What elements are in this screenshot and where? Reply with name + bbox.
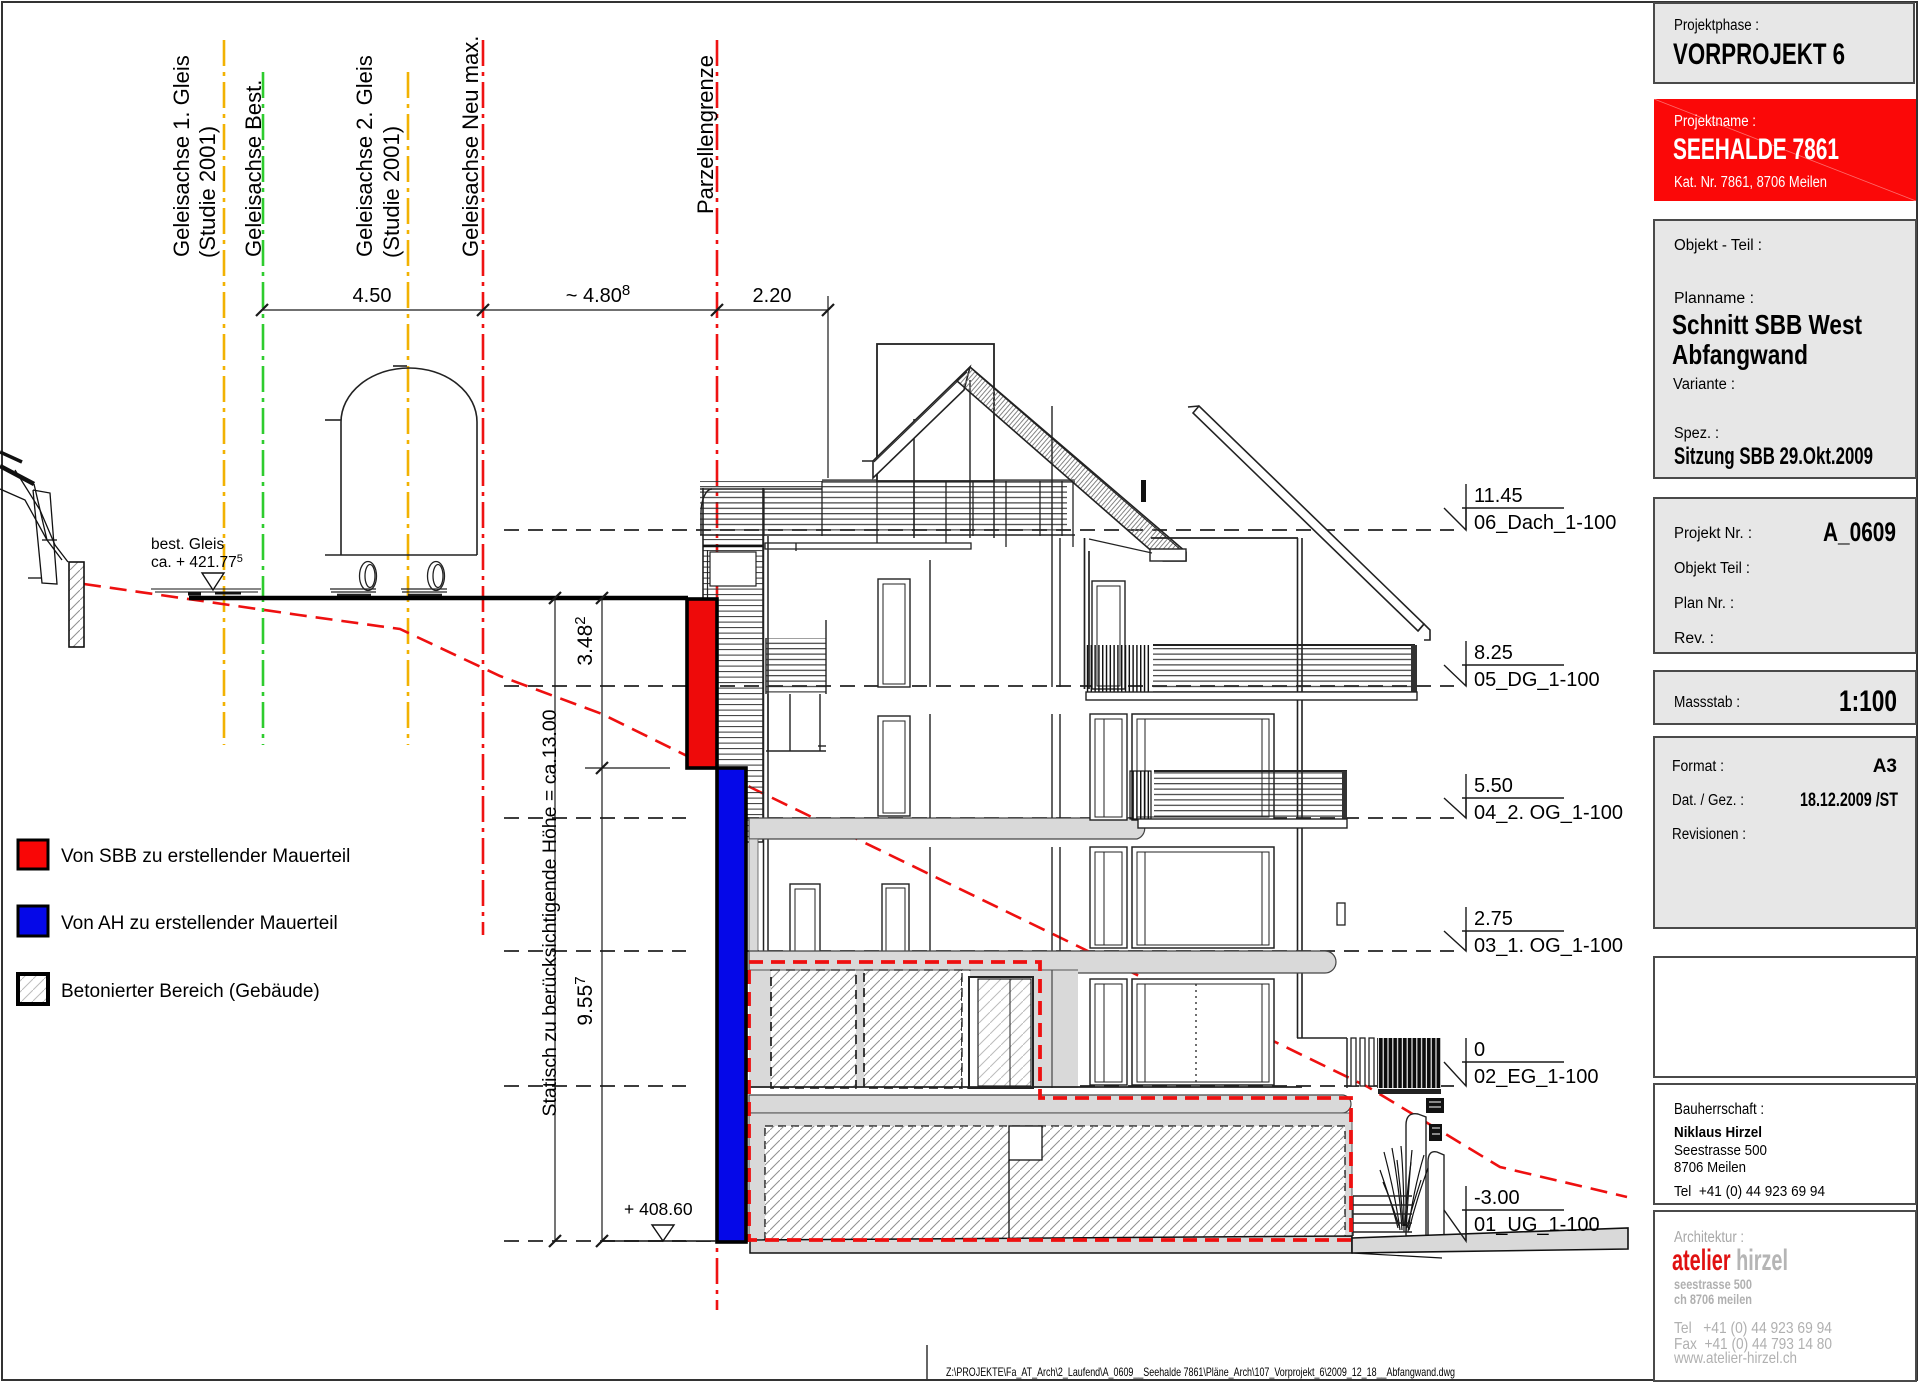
svg-text:Objekt - Teil :: Objekt - Teil :	[1674, 237, 1762, 254]
svg-text:5.50: 5.50	[1474, 775, 1513, 797]
svg-text:Spez. :: Spez. :	[1674, 425, 1719, 442]
svg-text:atelier hirzel: atelier hirzel	[1672, 1244, 1788, 1277]
svg-text:Plan Nr. :: Plan Nr. :	[1674, 595, 1734, 612]
svg-text:03_1. OG_1-100: 03_1. OG_1-100	[1474, 935, 1623, 957]
svg-text:Objekt Teil :: Objekt Teil :	[1674, 560, 1750, 577]
svg-text:18.12.2009 /ST: 18.12.2009 /ST	[1800, 790, 1898, 811]
svg-text:Von AH zu erstellender Mauerte: Von AH zu erstellender Mauerteil	[61, 913, 338, 934]
svg-text:A3: A3	[1873, 756, 1897, 777]
svg-text:02_EG_1-100: 02_EG_1-100	[1474, 1066, 1599, 1088]
svg-text:Revisionen :: Revisionen :	[1672, 826, 1746, 843]
svg-text:Rev. :: Rev. :	[1674, 630, 1714, 647]
svg-text:Geleisachse Neu max.: Geleisachse Neu max.	[458, 36, 483, 257]
svg-text:best. Gleis: best. Gleis	[151, 536, 224, 553]
svg-text:Betonierter Bereich (Gebäude): Betonierter Bereich (Gebäude)	[61, 981, 320, 1002]
svg-text:Kat. Nr. 7861, 8706 Meilen: Kat. Nr. 7861, 8706 Meilen	[1674, 174, 1827, 191]
svg-text:VORPROJEKT 6: VORPROJEKT 6	[1673, 38, 1845, 71]
svg-text:06_Dach_1-100: 06_Dach_1-100	[1474, 512, 1616, 534]
svg-text:Projekt Nr. :: Projekt Nr. :	[1674, 525, 1752, 542]
svg-text:Niklaus Hirzel: Niklaus Hirzel	[1674, 1124, 1762, 1141]
svg-text:+ 408.60: + 408.60	[624, 1199, 693, 1219]
svg-text:2.75: 2.75	[1474, 908, 1513, 930]
svg-text:Parzellengrenze: Parzellengrenze	[693, 55, 718, 214]
svg-text:Schnitt SBB West: Schnitt SBB West	[1672, 309, 1862, 340]
svg-text:0: 0	[1474, 1039, 1485, 1061]
svg-text:Geleisachse Best.: Geleisachse Best.	[241, 80, 266, 257]
svg-text:04_2. OG_1-100: 04_2. OG_1-100	[1474, 802, 1623, 824]
svg-text:-3.00: -3.00	[1474, 1187, 1520, 1209]
svg-text:Dat. / Gez. :: Dat. / Gez. :	[1672, 792, 1744, 809]
svg-text:Z:\PROJEKTE\Fa_AT_Arch\2_Laufe: Z:\PROJEKTE\Fa_AT_Arch\2_Laufend\A_0609_…	[946, 1365, 1455, 1379]
svg-text:Variante :: Variante :	[1673, 376, 1735, 393]
svg-text:www.atelier-hirzel.ch: www.atelier-hirzel.ch	[1673, 1350, 1797, 1367]
svg-text:Projektname :: Projektname :	[1674, 113, 1756, 130]
svg-text:ca. + 421.775: ca. + 421.775	[151, 553, 243, 571]
svg-text:Seestrasse 500: Seestrasse 500	[1674, 1142, 1767, 1159]
svg-text:(Studie 2001): (Studie 2001)	[379, 126, 404, 258]
svg-text:Tel +41 (0) 44 923 69 94: Tel +41 (0) 44 923 69 94	[1674, 1320, 1832, 1337]
svg-text:05_DG_1-100: 05_DG_1-100	[1474, 669, 1600, 691]
svg-text:Von SBB zu erstellender Mauert: Von SBB zu erstellender Mauerteil	[61, 846, 350, 867]
svg-text:SEEHALDE 7861: SEEHALDE 7861	[1673, 133, 1839, 166]
svg-text:Planname :: Planname :	[1674, 290, 1754, 307]
svg-text:Statisch zu berücksichtigende: Statisch zu berücksichtigende Höhe = ca.…	[539, 709, 561, 1116]
svg-text:Abfangwand: Abfangwand	[1672, 339, 1808, 370]
svg-text:seestrasse 500: seestrasse 500	[1674, 1276, 1752, 1292]
svg-text:8.25: 8.25	[1474, 642, 1513, 664]
svg-text:Projektphase :: Projektphase :	[1674, 17, 1759, 34]
svg-text:ch 8706 meilen: ch 8706 meilen	[1674, 1291, 1752, 1307]
svg-text:2.20: 2.20	[753, 285, 792, 307]
svg-text:Geleisachse 1. Gleis: Geleisachse 1. Gleis	[169, 55, 194, 257]
svg-text:1:100: 1:100	[1839, 685, 1897, 718]
svg-text:A_0609: A_0609	[1823, 517, 1896, 547]
svg-text:Format :: Format :	[1672, 758, 1724, 775]
svg-text:8706 Meilen: 8706 Meilen	[1674, 1159, 1746, 1176]
svg-text:01_UG_1-100: 01_UG_1-100	[1474, 1214, 1600, 1236]
svg-text:Massstab :: Massstab :	[1674, 694, 1740, 711]
svg-text:Tel +41 (0) 44 923 69 94: Tel +41 (0) 44 923 69 94	[1674, 1183, 1825, 1200]
svg-text:4.50: 4.50	[353, 285, 392, 307]
svg-text:Sitzung SBB 29.Okt.2009: Sitzung SBB 29.Okt.2009	[1674, 443, 1873, 470]
svg-text:~ 4.808: ~ 4.808	[566, 282, 631, 307]
svg-text:(Studie 2001): (Studie 2001)	[195, 126, 220, 258]
svg-text:11.45: 11.45	[1474, 485, 1523, 507]
svg-text:Bauherrschaft :: Bauherrschaft :	[1674, 1101, 1764, 1118]
svg-text:Geleisachse 2. Gleis: Geleisachse 2. Gleis	[352, 55, 377, 257]
